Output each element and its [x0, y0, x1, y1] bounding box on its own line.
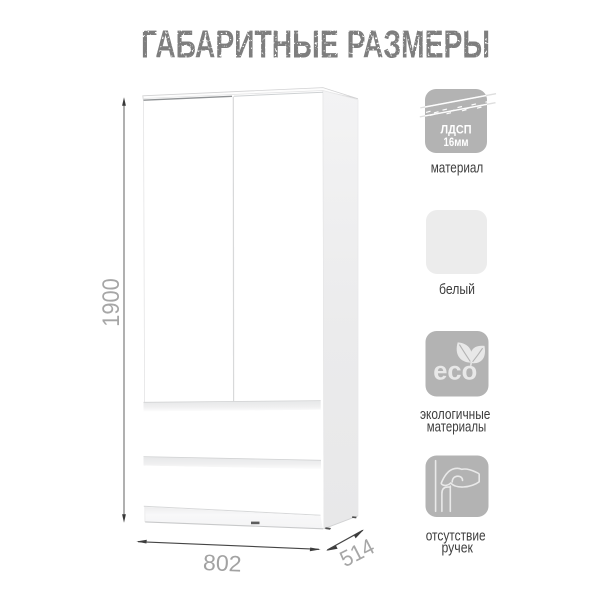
svg-text:514: 514 [336, 534, 379, 572]
svg-text:802: 802 [203, 550, 243, 577]
svg-text:материалы: материалы [427, 420, 487, 436]
svg-text:16мм: 16мм [444, 137, 469, 149]
svg-text:ЛДСП: ЛДСП [441, 123, 472, 137]
svg-text:ручек: ручек [441, 541, 473, 557]
svg-text:материал: материал [431, 161, 484, 177]
svg-text:1900: 1900 [98, 278, 125, 327]
svg-text:белый: белый [439, 282, 475, 298]
svg-text:ГАБАРИТНЫЕ РАЗМЕРЫ: ГАБАРИТНЫЕ РАЗМЕРЫ [141, 23, 490, 66]
